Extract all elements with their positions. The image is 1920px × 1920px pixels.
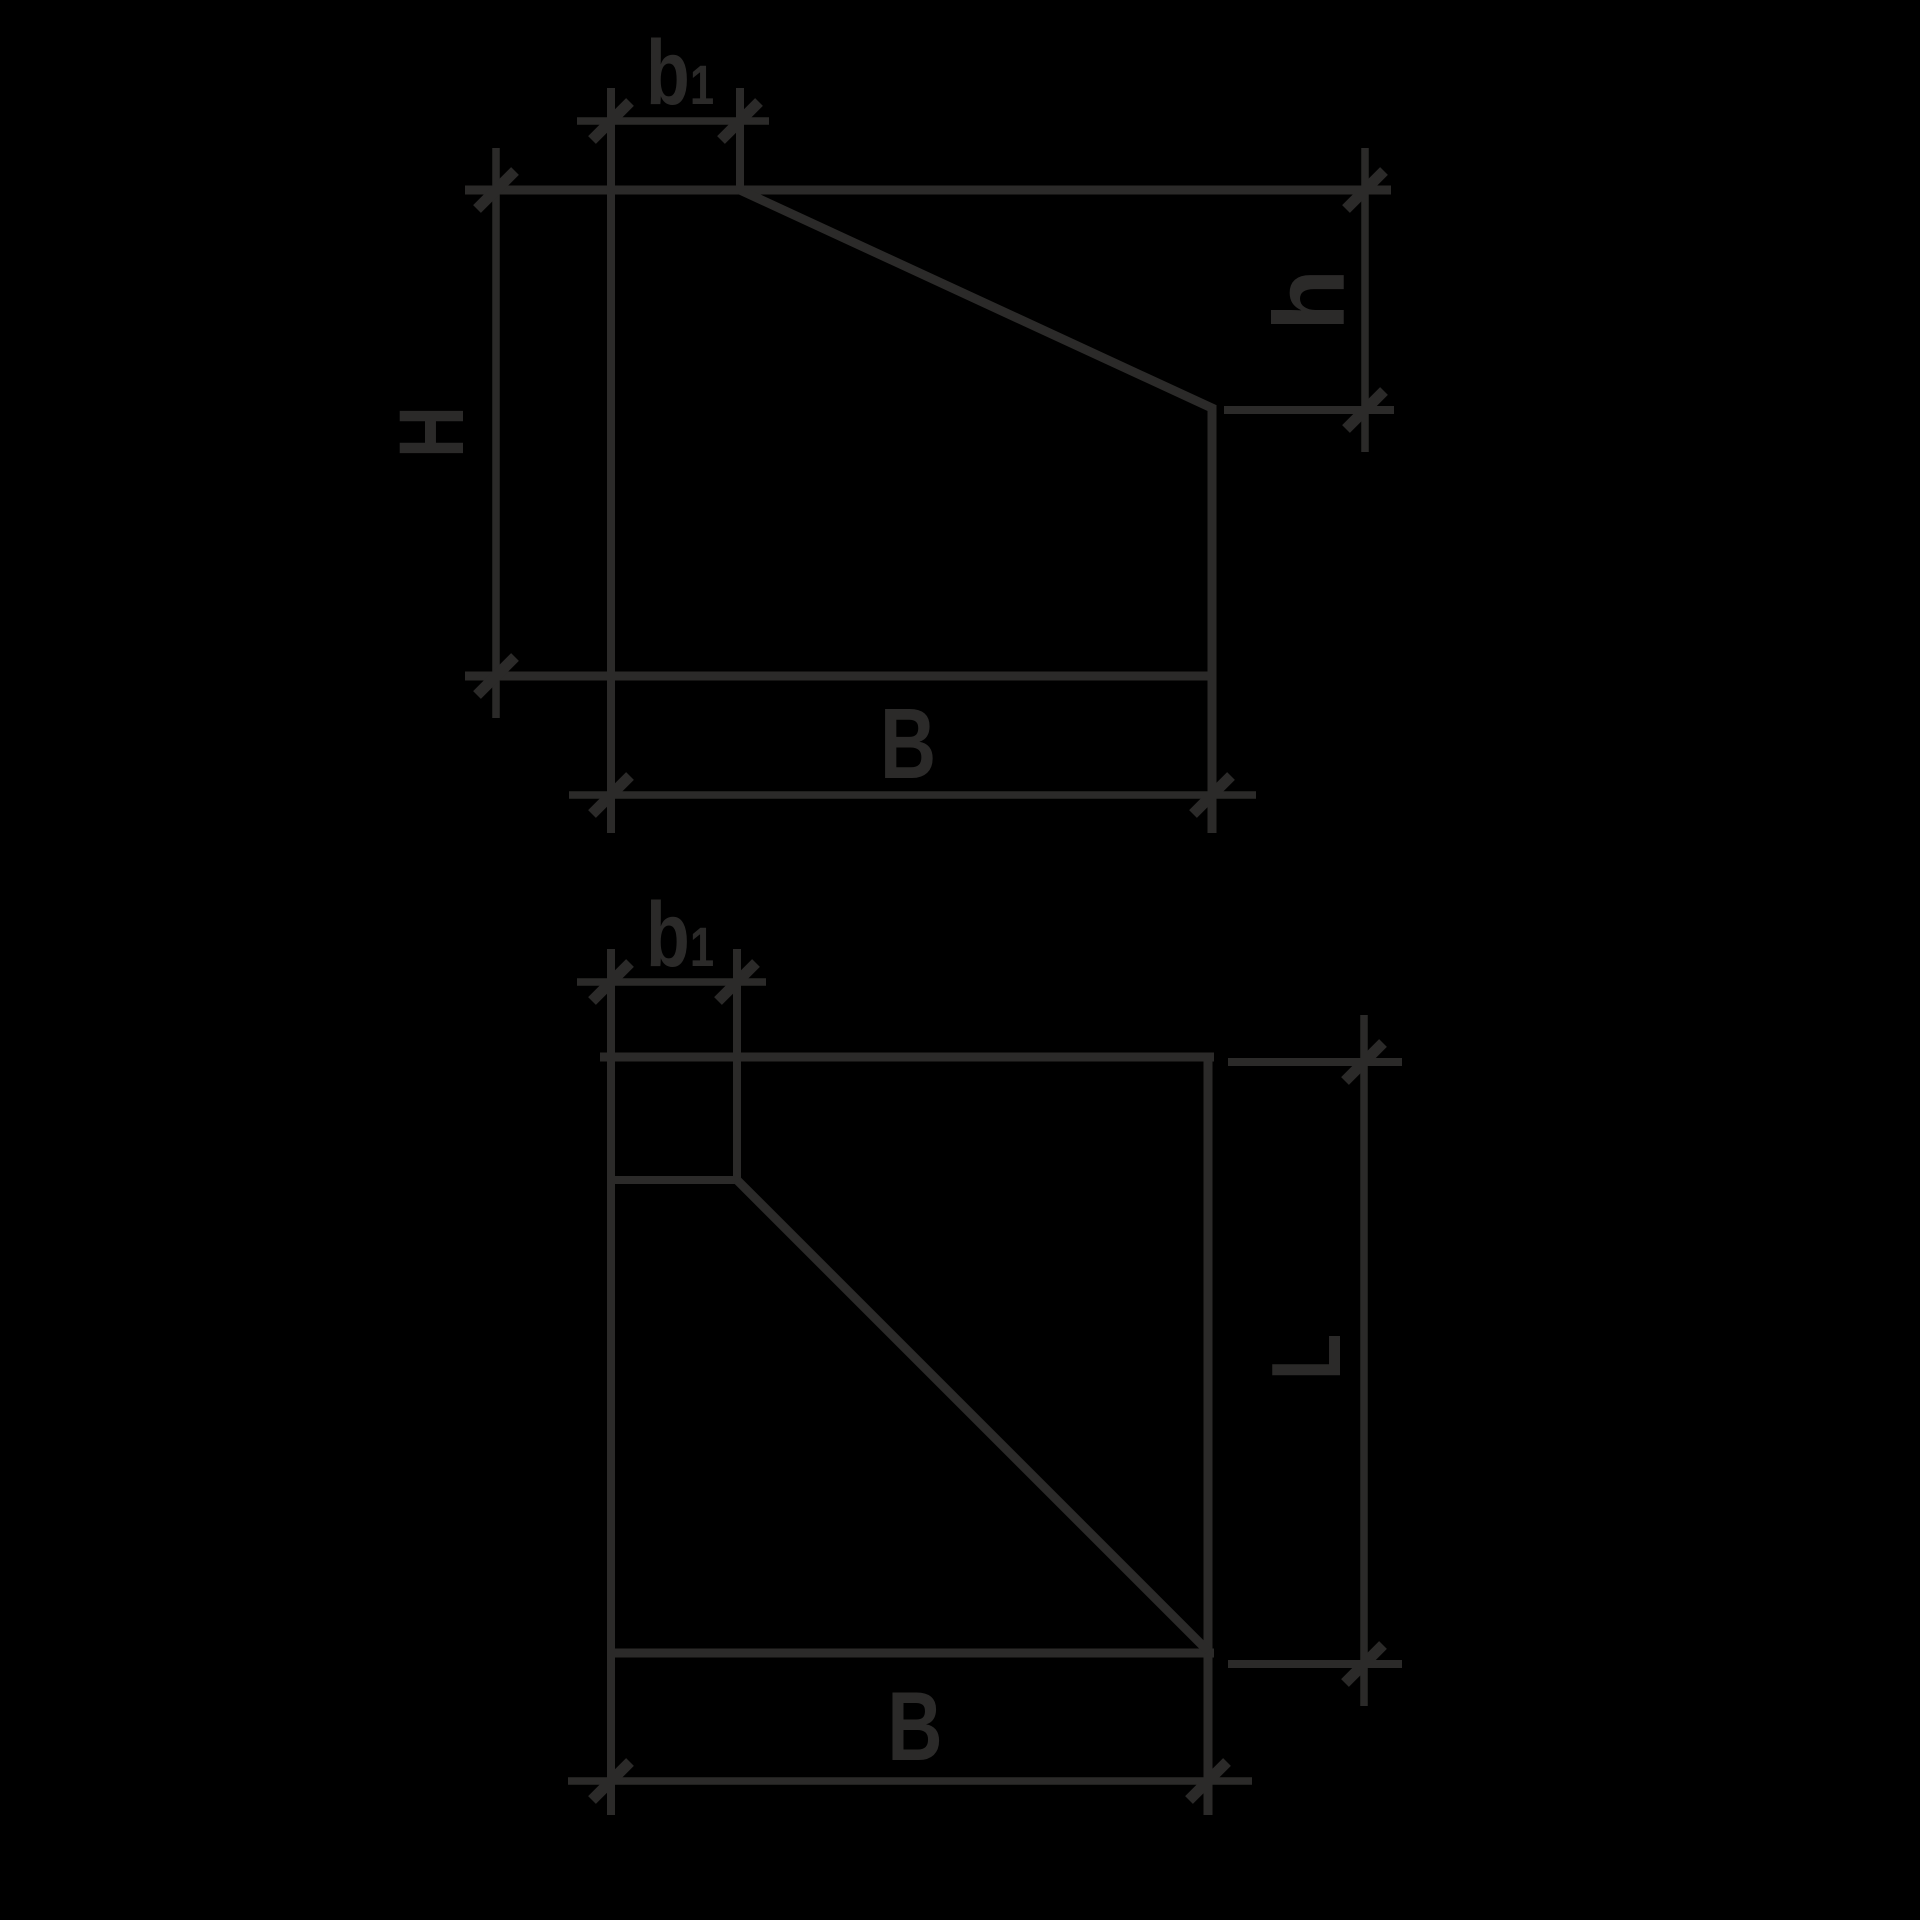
svg-text:L: L [1251,1334,1361,1381]
svg-text:H: H [381,406,484,458]
svg-text:h: h [1255,269,1366,331]
svg-text:B: B [887,1671,942,1781]
svg-text:B: B [880,689,936,801]
